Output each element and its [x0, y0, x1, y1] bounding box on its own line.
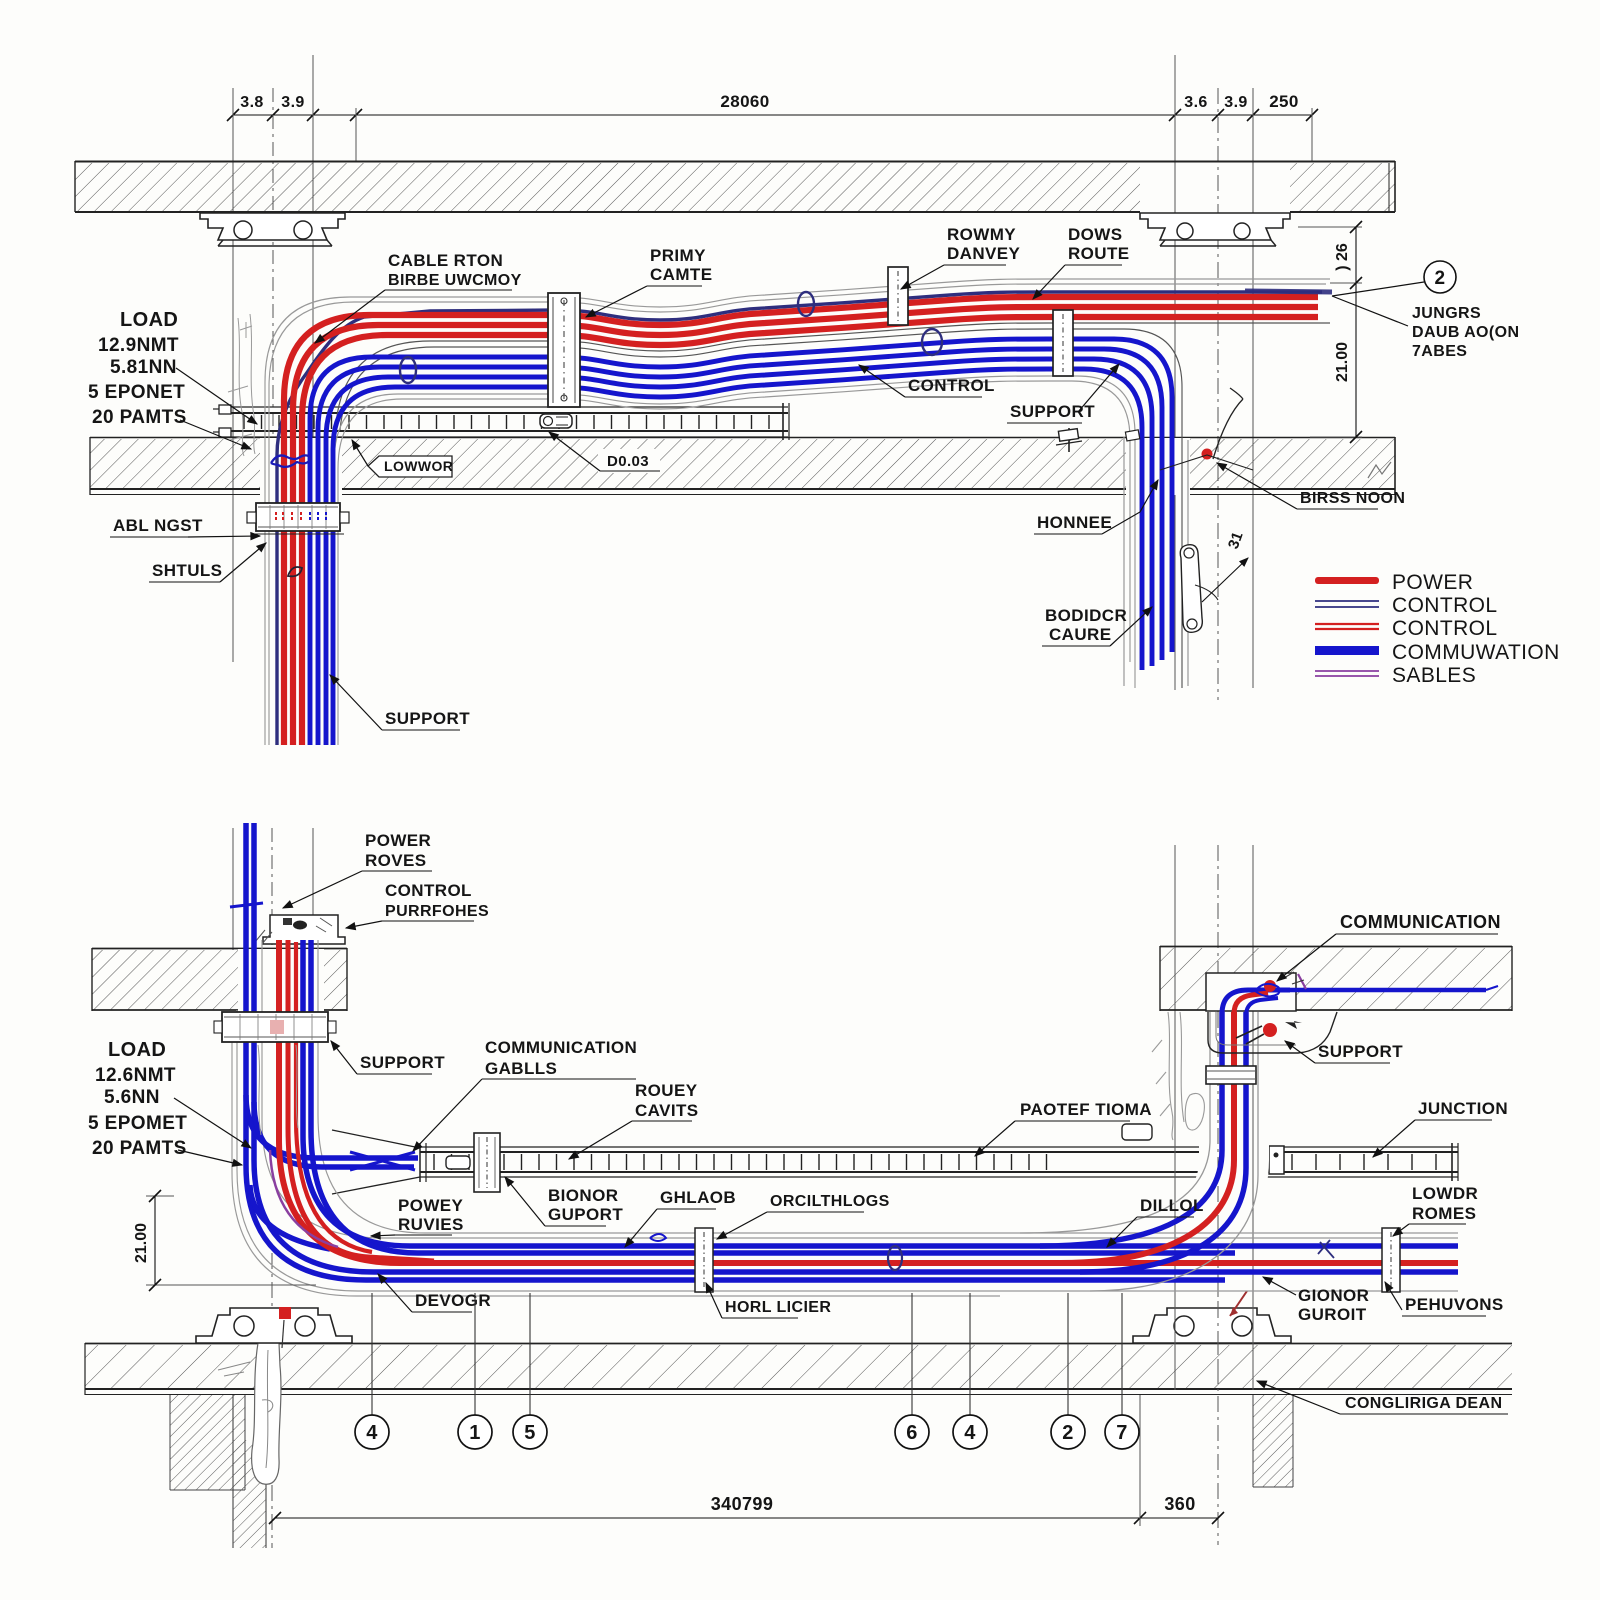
- svg-text:LOAD: LOAD: [108, 1039, 166, 1061]
- svg-text:BIRSS NOON: BIRSS NOON: [1300, 490, 1405, 507]
- svg-text:BIRBE UWCMOY: BIRBE UWCMOY: [388, 272, 522, 289]
- svg-text:PRIMY: PRIMY: [650, 246, 706, 265]
- svg-text:CONTROL: CONTROL: [1392, 594, 1497, 617]
- svg-text:JUNGRS: JUNGRS: [1412, 305, 1481, 322]
- svg-text:GABLLS: GABLLS: [485, 1059, 557, 1078]
- svg-text:20 PAMTS: 20 PAMTS: [92, 407, 187, 428]
- svg-text:7: 7: [1116, 1422, 1128, 1444]
- svg-text:5 EPOMET: 5 EPOMET: [88, 1113, 187, 1134]
- svg-text:21.00: 21.00: [1334, 342, 1351, 382]
- svg-text:CAMTE: CAMTE: [650, 265, 712, 284]
- svg-text:250: 250: [1269, 92, 1299, 111]
- svg-text:SABLES: SABLES: [1392, 664, 1476, 687]
- svg-text:ROWMY: ROWMY: [947, 225, 1016, 244]
- svg-text:CONTROL: CONTROL: [1392, 617, 1497, 640]
- svg-text:ORCILTHLOGS: ORCILTHLOGS: [770, 1193, 890, 1210]
- svg-text:SUPPORT: SUPPORT: [360, 1053, 445, 1072]
- svg-text:5: 5: [524, 1422, 536, 1444]
- svg-text:HONNEE: HONNEE: [1037, 513, 1112, 532]
- svg-text:CONTROL: CONTROL: [908, 376, 995, 395]
- svg-text:POWER: POWER: [365, 831, 431, 850]
- svg-text:ROUTE: ROUTE: [1068, 244, 1130, 263]
- svg-text:5.81NN: 5.81NN: [110, 357, 177, 378]
- svg-text:2: 2: [1062, 1422, 1074, 1444]
- svg-text:SUPPORT: SUPPORT: [1318, 1042, 1403, 1061]
- svg-text:21.00: 21.00: [133, 1223, 150, 1263]
- svg-text:12.6NMT: 12.6NMT: [95, 1065, 176, 1086]
- svg-text:6: 6: [906, 1422, 918, 1444]
- svg-text:GUROIT: GUROIT: [1298, 1305, 1367, 1324]
- svg-text:POWER: POWER: [1392, 571, 1473, 594]
- svg-text:4: 4: [366, 1422, 378, 1444]
- svg-text:ROMES: ROMES: [1412, 1204, 1476, 1223]
- svg-text:PEHUVONS: PEHUVONS: [1405, 1295, 1504, 1314]
- svg-text:LOWDR: LOWDR: [1412, 1184, 1478, 1203]
- svg-text:ABL NGST: ABL NGST: [113, 516, 203, 535]
- svg-text:SUPPORT: SUPPORT: [385, 709, 470, 728]
- svg-text:COMMUWATION: COMMUWATION: [1392, 641, 1560, 664]
- svg-text:DOWS: DOWS: [1068, 225, 1122, 244]
- svg-text:D0.03: D0.03: [607, 453, 649, 470]
- svg-text:CONGLIRIGA DEAN: CONGLIRIGA DEAN: [1345, 1395, 1502, 1412]
- svg-text:CAURE: CAURE: [1049, 625, 1111, 644]
- svg-text:SHTULS: SHTULS: [152, 561, 222, 580]
- svg-text:5.6NN: 5.6NN: [104, 1087, 160, 1108]
- svg-text:DAUB AO(ON: DAUB AO(ON: [1412, 324, 1519, 341]
- svg-text:GUPORT: GUPORT: [548, 1205, 623, 1224]
- svg-text:ROVES: ROVES: [365, 851, 427, 870]
- svg-text:4: 4: [964, 1422, 976, 1444]
- svg-text:SUPPORT: SUPPORT: [1010, 402, 1095, 421]
- svg-text:20 PAMTS: 20 PAMTS: [92, 1138, 187, 1159]
- svg-text:340799: 340799: [711, 1494, 773, 1514]
- svg-text:LOWWOR: LOWWOR: [384, 458, 453, 474]
- svg-text:12.9NMT: 12.9NMT: [98, 335, 179, 356]
- svg-text:PURRFOHES: PURRFOHES: [385, 903, 489, 920]
- svg-text:ROUEY: ROUEY: [635, 1081, 698, 1100]
- svg-text:1: 1: [469, 1422, 481, 1444]
- svg-text:3.8: 3.8: [240, 94, 263, 111]
- svg-text:RUVIES: RUVIES: [398, 1215, 464, 1234]
- svg-text:3.9: 3.9: [281, 94, 304, 111]
- svg-text:GIONOR: GIONOR: [1298, 1286, 1369, 1305]
- svg-text:CABLE RTON: CABLE RTON: [388, 251, 503, 270]
- svg-text:BODIDCR: BODIDCR: [1045, 606, 1127, 625]
- svg-text:DEVOGR: DEVOGR: [415, 1291, 491, 1310]
- svg-text:28060: 28060: [720, 92, 769, 111]
- svg-text:LOAD: LOAD: [120, 309, 178, 331]
- svg-text:JUNCTION: JUNCTION: [1418, 1099, 1508, 1118]
- svg-text:5 EPONET: 5 EPONET: [88, 382, 185, 403]
- svg-text:POWEY: POWEY: [398, 1196, 464, 1215]
- svg-text:COMMUNICATION: COMMUNICATION: [1340, 912, 1501, 932]
- svg-text:DANVEY: DANVEY: [947, 244, 1021, 263]
- svg-text:CAVITS: CAVITS: [635, 1101, 698, 1120]
- svg-text:360: 360: [1164, 1494, 1195, 1514]
- svg-text:3.9: 3.9: [1224, 94, 1247, 111]
- svg-text:HORL LICIER: HORL LICIER: [725, 1299, 831, 1316]
- svg-text:2: 2: [1435, 268, 1446, 289]
- svg-text:CONTROL: CONTROL: [385, 881, 472, 900]
- svg-text:) 26: ) 26: [1334, 243, 1351, 271]
- svg-text:7ABES: 7ABES: [1412, 343, 1467, 360]
- svg-text:PAOTEF TIOMA: PAOTEF TIOMA: [1020, 1100, 1152, 1119]
- svg-text:GHLAOB: GHLAOB: [660, 1188, 736, 1207]
- svg-text:3.6: 3.6: [1184, 94, 1207, 111]
- svg-text:DILLOL: DILLOL: [1140, 1196, 1204, 1215]
- svg-text:COMMUNICATION: COMMUNICATION: [485, 1038, 637, 1057]
- svg-text:BIONOR: BIONOR: [548, 1186, 618, 1205]
